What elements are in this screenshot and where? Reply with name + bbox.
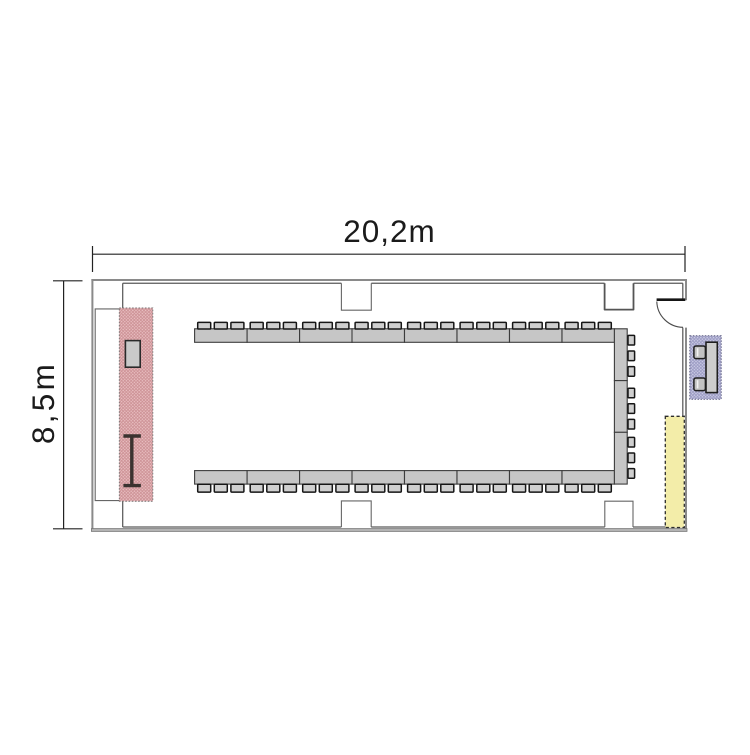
svg-text:8,5m: 8,5m — [25, 361, 61, 444]
svg-text:20,2m: 20,2m — [343, 213, 436, 249]
